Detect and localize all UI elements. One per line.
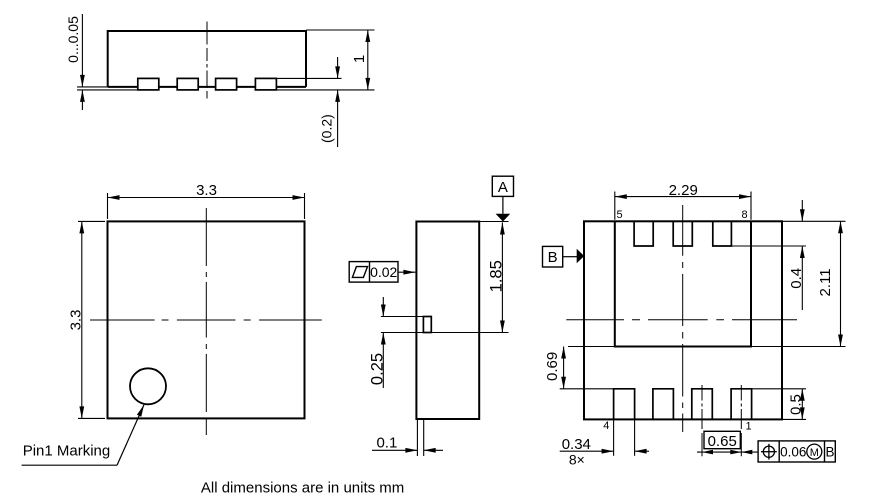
svg-text:0.02: 0.02 bbox=[370, 264, 397, 280]
svg-text:1: 1 bbox=[745, 420, 751, 432]
svg-text:0.5: 0.5 bbox=[787, 394, 804, 415]
svg-text:All dimensions are in units mm: All dimensions are in units mm bbox=[201, 479, 404, 495]
svg-text:2.11: 2.11 bbox=[817, 268, 834, 296]
svg-text:8×: 8× bbox=[569, 451, 585, 467]
svg-text:8: 8 bbox=[741, 209, 747, 221]
svg-text:1.85: 1.85 bbox=[488, 260, 506, 292]
svg-text:0.25: 0.25 bbox=[369, 353, 387, 385]
svg-text:Pin1 Marking: Pin1 Marking bbox=[23, 443, 111, 460]
svg-text:1: 1 bbox=[351, 55, 368, 63]
svg-text:2.29: 2.29 bbox=[669, 182, 698, 199]
svg-text:0.69: 0.69 bbox=[544, 352, 561, 381]
svg-text:M: M bbox=[810, 447, 819, 459]
svg-text:0.65: 0.65 bbox=[708, 433, 737, 450]
svg-text:B: B bbox=[825, 445, 834, 460]
svg-text:0...0.05: 0...0.05 bbox=[65, 16, 81, 63]
svg-text:0.1: 0.1 bbox=[376, 434, 397, 451]
svg-text:4: 4 bbox=[603, 420, 609, 432]
svg-text:(0.2): (0.2) bbox=[319, 114, 335, 143]
svg-text:0.06: 0.06 bbox=[780, 445, 806, 460]
svg-text:0.4: 0.4 bbox=[788, 268, 805, 289]
svg-text:A: A bbox=[498, 179, 508, 196]
svg-text:3.3: 3.3 bbox=[196, 182, 217, 199]
svg-text:B: B bbox=[548, 249, 558, 266]
svg-text:5: 5 bbox=[616, 209, 622, 221]
svg-text:3.3: 3.3 bbox=[68, 310, 85, 331]
